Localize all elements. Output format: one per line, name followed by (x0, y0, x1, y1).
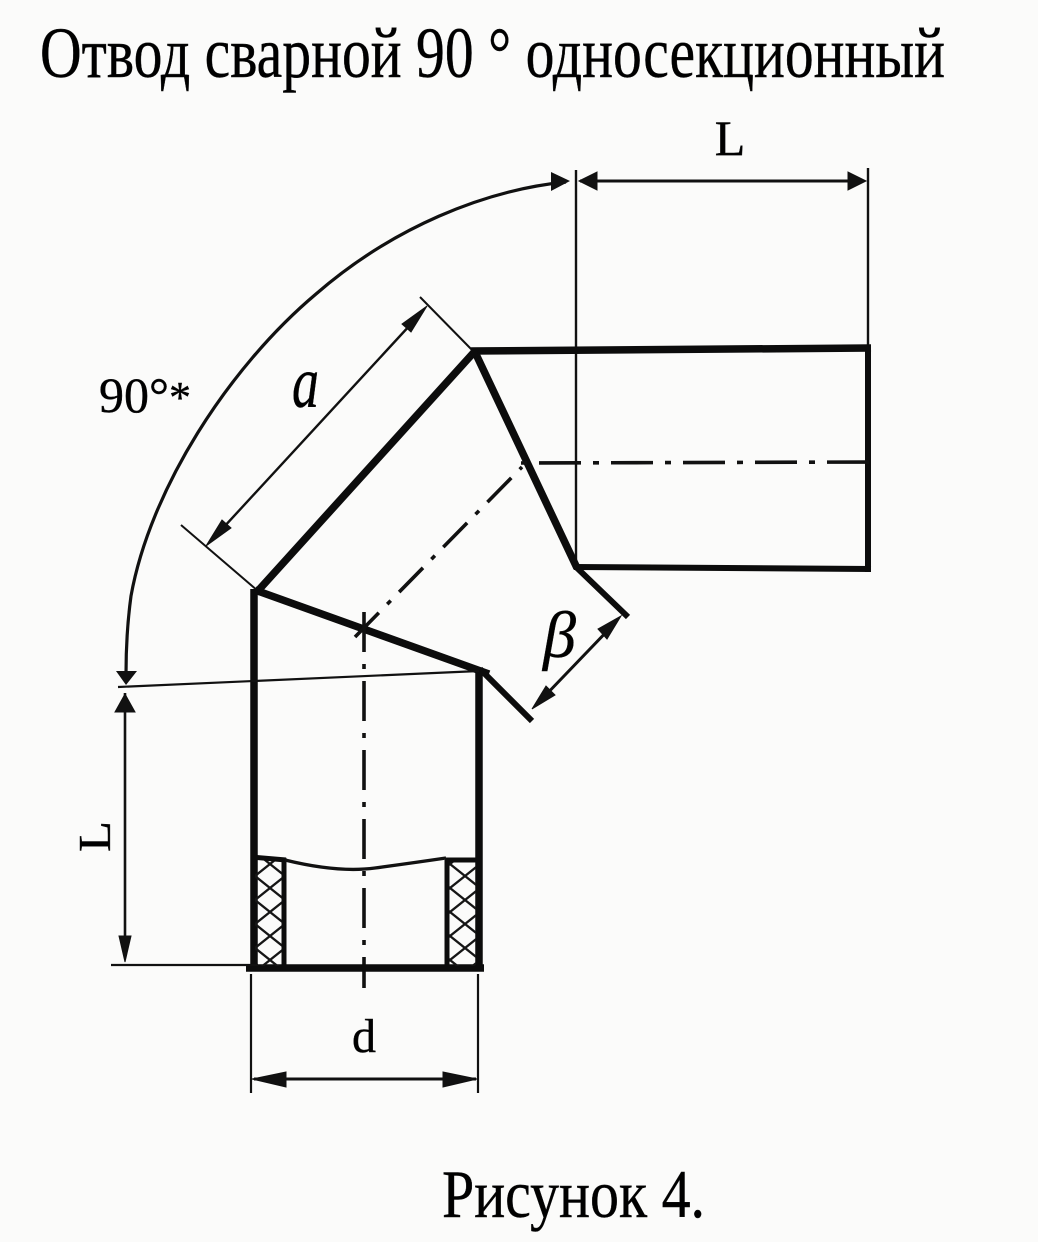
svg-text:L: L (69, 821, 120, 852)
svg-text:90°*: 90°* (99, 367, 191, 423)
svg-text:d: d (352, 1010, 376, 1063)
svg-text:Отвод сварной 90 ° односекцион: Отвод сварной 90 ° односекционный (40, 13, 945, 93)
svg-text:Рисунок 4.: Рисунок 4. (442, 1156, 705, 1232)
svg-text:a: a (292, 342, 319, 423)
svg-text:L: L (715, 110, 746, 166)
svg-text:β: β (541, 599, 576, 672)
